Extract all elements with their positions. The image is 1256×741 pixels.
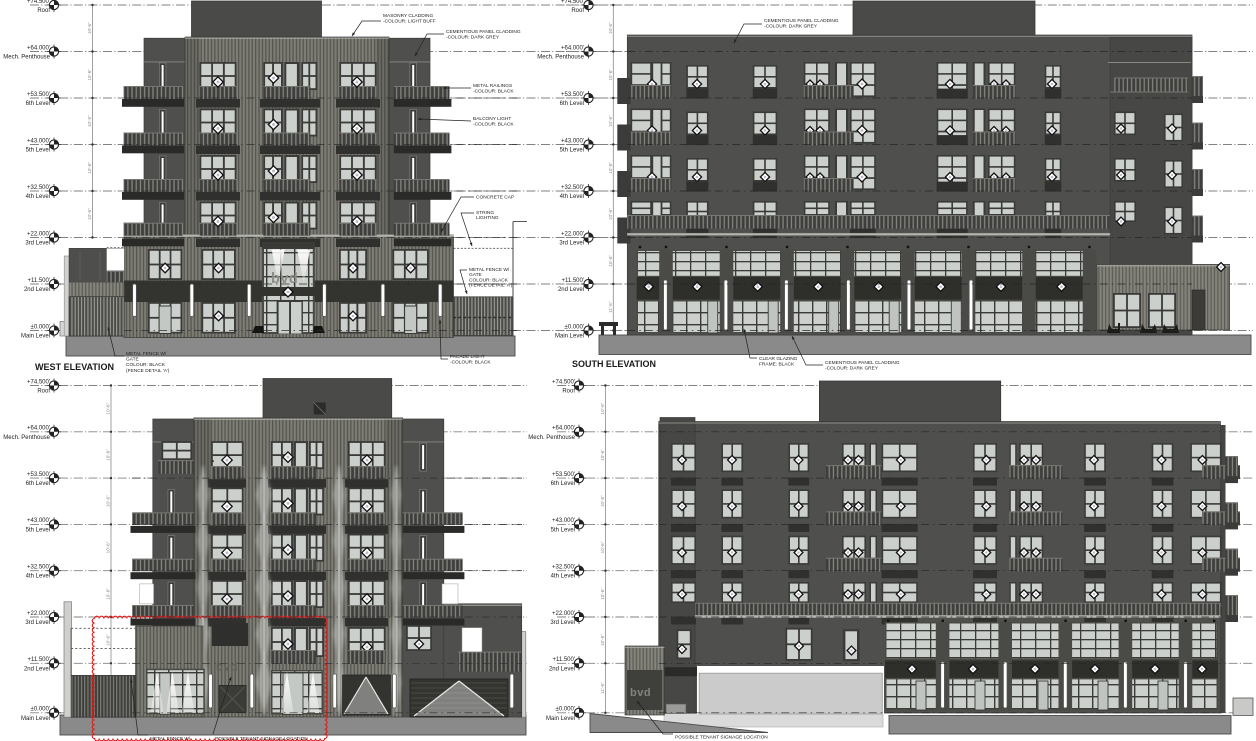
svg-text:5th Level: 5th Level [551, 527, 575, 533]
svg-text:5th Level: 5th Level [560, 148, 584, 154]
svg-text:6th Level: 6th Level [560, 101, 584, 107]
svg-text:10'-6": 10'-6" [600, 449, 605, 461]
svg-text:10'-6": 10'-6" [106, 634, 111, 646]
svg-text:Main Level: Main Level [546, 716, 575, 722]
svg-text:bvd: bvd [630, 687, 651, 699]
svg-text:10'-6": 10'-6" [87, 22, 92, 34]
svg-text:METAL FENCE W/: METAL FENCE W/ [469, 267, 510, 273]
svg-text:+53.500': +53.500' [27, 92, 50, 98]
svg-text:±0.000': ±0.000' [31, 324, 50, 330]
svg-text:Main Level: Main Level [21, 334, 50, 340]
svg-text:CONCRETE CAP: CONCRETE CAP [476, 195, 514, 201]
svg-text:+53.500': +53.500' [552, 472, 575, 478]
svg-text:CEMENTIOUS PANEL CLADDING: CEMENTIOUS PANEL CLADDING [764, 18, 839, 24]
svg-text:10'-6": 10'-6" [600, 634, 605, 646]
svg-text:CEMENTIOUS PANEL CLADDING: CEMENTIOUS PANEL CLADDING [446, 29, 521, 35]
svg-text:+11.500': +11.500' [552, 657, 575, 663]
svg-text:MASONRY CLADDING: MASONRY CLADDING [383, 13, 433, 19]
svg-text:+74.500': +74.500' [561, 0, 584, 5]
svg-text:6th Level: 6th Level [551, 481, 575, 487]
svg-text:+64.000': +64.000' [27, 426, 50, 432]
svg-text:+64.000': +64.000' [561, 45, 584, 51]
svg-text:BALCONY LIGHT: BALCONY LIGHT [473, 116, 511, 122]
svg-text:+11.500': +11.500' [27, 278, 50, 284]
svg-text:+64.000': +64.000' [27, 45, 50, 51]
svg-text:Main Level: Main Level [555, 334, 584, 340]
svg-text:-COLOUR: BLACK: -COLOUR: BLACK [473, 122, 514, 128]
svg-text:+32.500': +32.500' [561, 185, 584, 191]
svg-text:METAL FENCE W/: METAL FENCE W/ [126, 351, 167, 357]
svg-text:10'-6": 10'-6" [106, 588, 111, 600]
svg-text:Mech. Penthouse: Mech. Penthouse [528, 435, 575, 441]
svg-text:FACADE LIGHT: FACADE LIGHT [450, 354, 485, 360]
svg-text:4th Level: 4th Level [560, 194, 584, 200]
svg-text:-COLOUR: BLACK: -COLOUR: BLACK [473, 89, 514, 95]
svg-text:10'-6": 10'-6" [600, 588, 605, 600]
svg-text:+22.000': +22.000' [27, 231, 50, 237]
svg-text:-COLOUR: BLACK: -COLOUR: BLACK [450, 360, 491, 366]
svg-text:FRAME: BLACK: FRAME: BLACK [759, 362, 795, 368]
svg-text:4th Level: 4th Level [551, 574, 575, 580]
svg-text:+11.500': +11.500' [27, 657, 50, 663]
svg-text:+32.500': +32.500' [552, 565, 575, 571]
svg-text:10'-6": 10'-6" [87, 162, 92, 174]
svg-text:+74.500': +74.500' [27, 379, 50, 385]
svg-text:10'-6": 10'-6" [600, 541, 605, 553]
svg-text:5th Level: 5th Level [26, 148, 50, 154]
svg-text:Mech. Penthouse: Mech. Penthouse [3, 55, 50, 61]
svg-text:-COLOUR: DARK GREY: -COLOUR: DARK GREY [764, 24, 818, 30]
svg-text:3rd Level: 3rd Level [559, 241, 584, 247]
svg-text:Roof: Roof [562, 389, 575, 395]
svg-text:10'-6": 10'-6" [608, 162, 613, 174]
svg-text:POSSIBLE TENANT SIGNAGE LOCATI: POSSIBLE TENANT SIGNAGE LOCATION [215, 736, 308, 741]
svg-text:+43.000': +43.000' [27, 518, 50, 524]
svg-text:+11.500': +11.500' [561, 278, 584, 284]
svg-text:10'-6": 10'-6" [87, 115, 92, 127]
svg-text:11'-6": 11'-6" [608, 301, 613, 313]
svg-text:10'-6": 10'-6" [106, 495, 111, 507]
svg-text:±0.000': ±0.000' [556, 707, 575, 713]
svg-text:CEMENTIOUS PANEL CLADDING: CEMENTIOUS PANEL CLADDING [825, 360, 900, 366]
svg-text:+32.500': +32.500' [27, 185, 50, 191]
svg-text:METAL FENCE W/: METAL FENCE W/ [150, 736, 191, 741]
svg-text:GATE: GATE [469, 272, 482, 278]
svg-text:2nd Level: 2nd Level [24, 287, 50, 293]
svg-text:CLEAR GLAZING: CLEAR GLAZING [759, 356, 798, 362]
svg-text:+53.500': +53.500' [27, 472, 50, 478]
svg-text:COLOUR: BLACK: COLOUR: BLACK [469, 277, 509, 283]
svg-text:+43.000': +43.000' [552, 518, 575, 524]
svg-text:±0.000': ±0.000' [565, 324, 584, 330]
svg-text:-COLOUR: LIGHT BUFF: -COLOUR: LIGHT BUFF [383, 19, 436, 25]
svg-text:WEST ELEVATION: WEST ELEVATION [35, 362, 114, 372]
svg-text:10'-6": 10'-6" [87, 69, 92, 81]
svg-text:11'-6": 11'-6" [600, 682, 605, 694]
svg-text:+64.000': +64.000' [552, 426, 575, 432]
svg-text:STRING: STRING [476, 210, 494, 216]
svg-text:3rd Level: 3rd Level [550, 620, 575, 626]
svg-text:6th Level: 6th Level [26, 481, 50, 487]
svg-text:-COLOUR: DARK GREY: -COLOUR: DARK GREY [825, 366, 879, 372]
svg-text:LIGHTING: LIGHTING [476, 215, 499, 221]
svg-text:10'-6": 10'-6" [106, 541, 111, 553]
svg-text:+53.500': +53.500' [561, 92, 584, 98]
svg-text:2nd Level: 2nd Level [558, 287, 584, 293]
svg-text:+22.000': +22.000' [27, 611, 50, 617]
svg-text:10'-6": 10'-6" [608, 255, 613, 267]
svg-text:Roof: Roof [37, 389, 50, 395]
svg-text:SOUTH ELEVATION: SOUTH ELEVATION [572, 359, 656, 369]
svg-text:+74.500': +74.500' [27, 0, 50, 5]
svg-text:6th Level: 6th Level [26, 101, 50, 107]
svg-text:10'-6": 10'-6" [608, 115, 613, 127]
svg-text:10'-6": 10'-6" [608, 208, 613, 220]
svg-text:10'-6": 10'-6" [600, 402, 605, 414]
svg-text:Mech. Penthouse: Mech. Penthouse [537, 55, 584, 61]
svg-text:+22.000': +22.000' [561, 231, 584, 237]
svg-text:Roof: Roof [37, 8, 50, 14]
svg-text:10'-6": 10'-6" [87, 208, 92, 220]
svg-text:GATE: GATE [126, 357, 139, 363]
svg-text:COLOUR: BLACK: COLOUR: BLACK [126, 362, 166, 368]
svg-text:+43.000': +43.000' [27, 138, 50, 144]
svg-text:Main Level: Main Level [21, 716, 50, 722]
svg-text:±0.000': ±0.000' [31, 707, 50, 713]
svg-text:4th Level: 4th Level [26, 574, 50, 580]
svg-text:2nd Level: 2nd Level [549, 666, 575, 672]
svg-text:Roof: Roof [571, 8, 584, 14]
svg-text:10'-6": 10'-6" [106, 449, 111, 461]
svg-text:3rd Level: 3rd Level [25, 620, 50, 626]
svg-text:METAL RAILINGS: METAL RAILINGS [473, 83, 512, 89]
svg-text:+32.500': +32.500' [27, 565, 50, 571]
svg-text:POSSIBLE TENANT SIGNAGE LOCATI: POSSIBLE TENANT SIGNAGE LOCATION [675, 735, 768, 741]
svg-text:10'-6": 10'-6" [106, 402, 111, 414]
svg-text:(FENCE DETAIL 'A'): (FENCE DETAIL 'A') [126, 368, 170, 374]
svg-text:bvd: bvd [271, 271, 298, 287]
svg-text:4th Level: 4th Level [26, 194, 50, 200]
svg-text:+22.000': +22.000' [552, 611, 575, 617]
svg-text:Mech. Penthouse: Mech. Penthouse [3, 435, 50, 441]
svg-text:(FENCE DETAIL 'A'): (FENCE DETAIL 'A') [469, 283, 513, 289]
svg-text:-COLOUR: DARK GREY: -COLOUR: DARK GREY [446, 35, 500, 41]
svg-text:10'-6": 10'-6" [608, 69, 613, 81]
svg-text:+43.000': +43.000' [561, 138, 584, 144]
svg-text:10'-6": 10'-6" [600, 495, 605, 507]
svg-text:10'-6": 10'-6" [608, 22, 613, 34]
svg-text:5th Level: 5th Level [26, 527, 50, 533]
svg-text:+74.500': +74.500' [552, 379, 575, 385]
svg-text:3rd Level: 3rd Level [25, 241, 50, 247]
svg-text:2nd Level: 2nd Level [24, 666, 50, 672]
